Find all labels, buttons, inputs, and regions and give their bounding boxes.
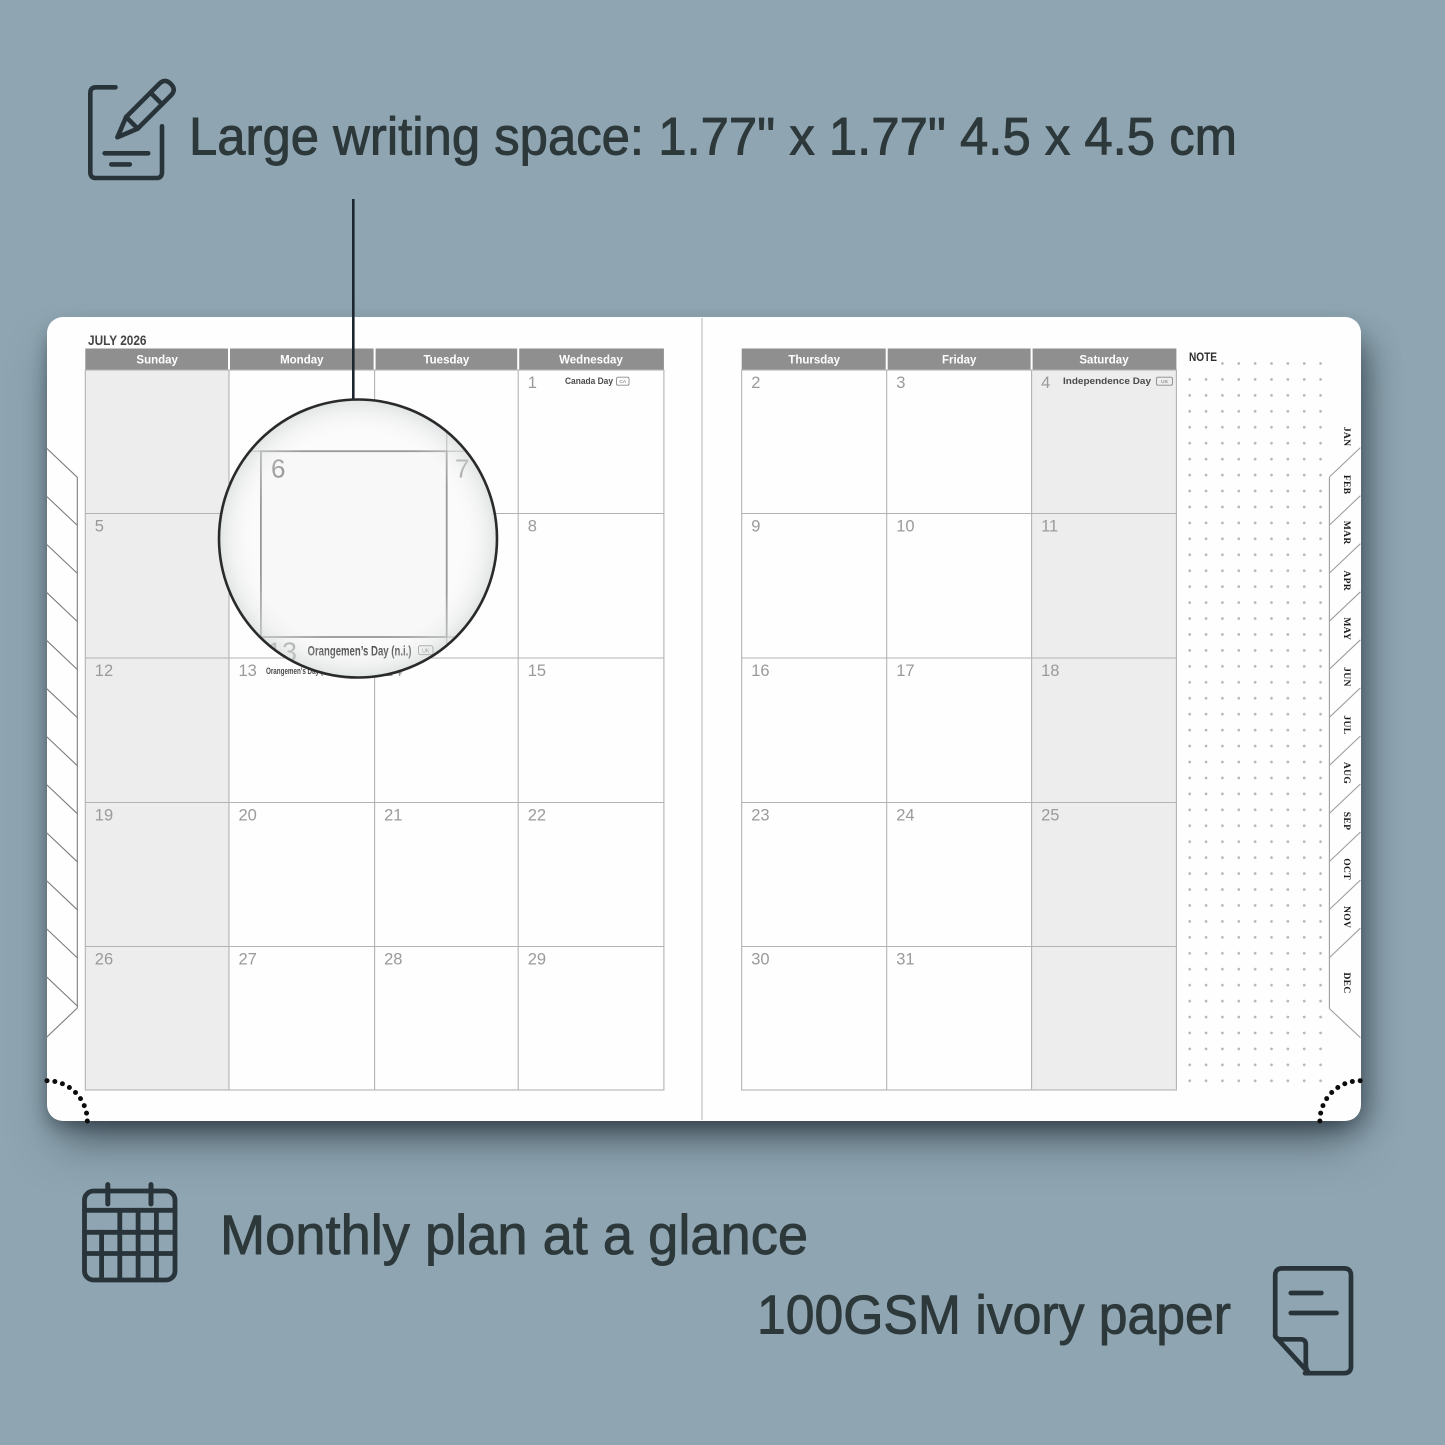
svg-text:MAR: MAR <box>1341 521 1352 546</box>
svg-text:25: 25 <box>1041 807 1059 825</box>
svg-text:19: 19 <box>95 807 113 825</box>
svg-text:30: 30 <box>751 951 769 969</box>
svg-text:Large writing space: 1.77" x 1: Large writing space: 1.77" x 1.77" 4.5 x… <box>189 107 1237 166</box>
svg-text:Monday: Monday <box>280 355 324 367</box>
svg-text:2: 2 <box>751 374 760 392</box>
svg-text:9: 9 <box>751 518 760 536</box>
svg-text:Tuesday: Tuesday <box>423 355 469 367</box>
svg-text:1: 1 <box>528 374 537 392</box>
svg-text:15: 15 <box>528 662 546 680</box>
svg-text:18: 18 <box>1041 662 1059 680</box>
svg-text:JUL: JUL <box>1341 715 1352 734</box>
svg-text:APR: APR <box>1341 570 1352 591</box>
svg-text:8: 8 <box>528 518 537 536</box>
svg-text:21: 21 <box>384 807 402 825</box>
svg-text:31: 31 <box>896 951 914 969</box>
svg-text:100GSM ivory paper: 100GSM ivory paper <box>757 1285 1231 1346</box>
svg-text:Sunday: Sunday <box>136 355 178 367</box>
svg-text:MAY: MAY <box>1341 617 1352 640</box>
svg-text:JUN: JUN <box>1341 667 1352 687</box>
svg-text:16: 16 <box>751 662 769 680</box>
svg-text:23: 23 <box>751 807 769 825</box>
svg-text:Friday: Friday <box>942 355 977 367</box>
svg-text:27: 27 <box>239 951 257 969</box>
svg-text:Saturday: Saturday <box>1079 355 1129 367</box>
svg-text:22: 22 <box>528 807 546 825</box>
svg-text:US: US <box>1161 379 1168 385</box>
svg-text:SEP: SEP <box>1341 812 1352 831</box>
svg-text:10: 10 <box>896 518 914 536</box>
svg-text:CA: CA <box>619 379 626 385</box>
svg-text:5: 5 <box>95 518 104 536</box>
svg-text:AUG: AUG <box>1341 762 1352 784</box>
svg-text:26: 26 <box>95 951 113 969</box>
svg-text:3: 3 <box>896 374 905 392</box>
svg-text:Canada Day: Canada Day <box>565 376 614 387</box>
svg-text:12: 12 <box>95 662 113 680</box>
svg-text:13: 13 <box>239 662 257 680</box>
svg-text:29: 29 <box>528 951 546 969</box>
svg-text:28: 28 <box>384 951 402 969</box>
svg-text:20: 20 <box>239 807 257 825</box>
svg-text:11: 11 <box>1041 518 1058 536</box>
svg-text:Thursday: Thursday <box>788 355 840 367</box>
svg-text:FEB: FEB <box>1341 475 1352 495</box>
svg-text:OCT: OCT <box>1341 858 1352 880</box>
svg-text:24: 24 <box>896 807 914 825</box>
svg-text:DEC: DEC <box>1341 972 1352 993</box>
svg-text:4: 4 <box>1041 374 1050 392</box>
svg-text:JULY 2026: JULY 2026 <box>88 333 147 348</box>
svg-text:Wednesday: Wednesday <box>559 355 623 367</box>
svg-text:NOTE: NOTE <box>1189 352 1217 364</box>
svg-text:17: 17 <box>896 662 914 680</box>
svg-text:JAN: JAN <box>1341 427 1352 447</box>
svg-text:NOV: NOV <box>1341 906 1352 928</box>
svg-text:Monthly plan at a glance: Monthly plan at a glance <box>220 1203 808 1266</box>
svg-text:Independence Day: Independence Day <box>1063 376 1152 387</box>
